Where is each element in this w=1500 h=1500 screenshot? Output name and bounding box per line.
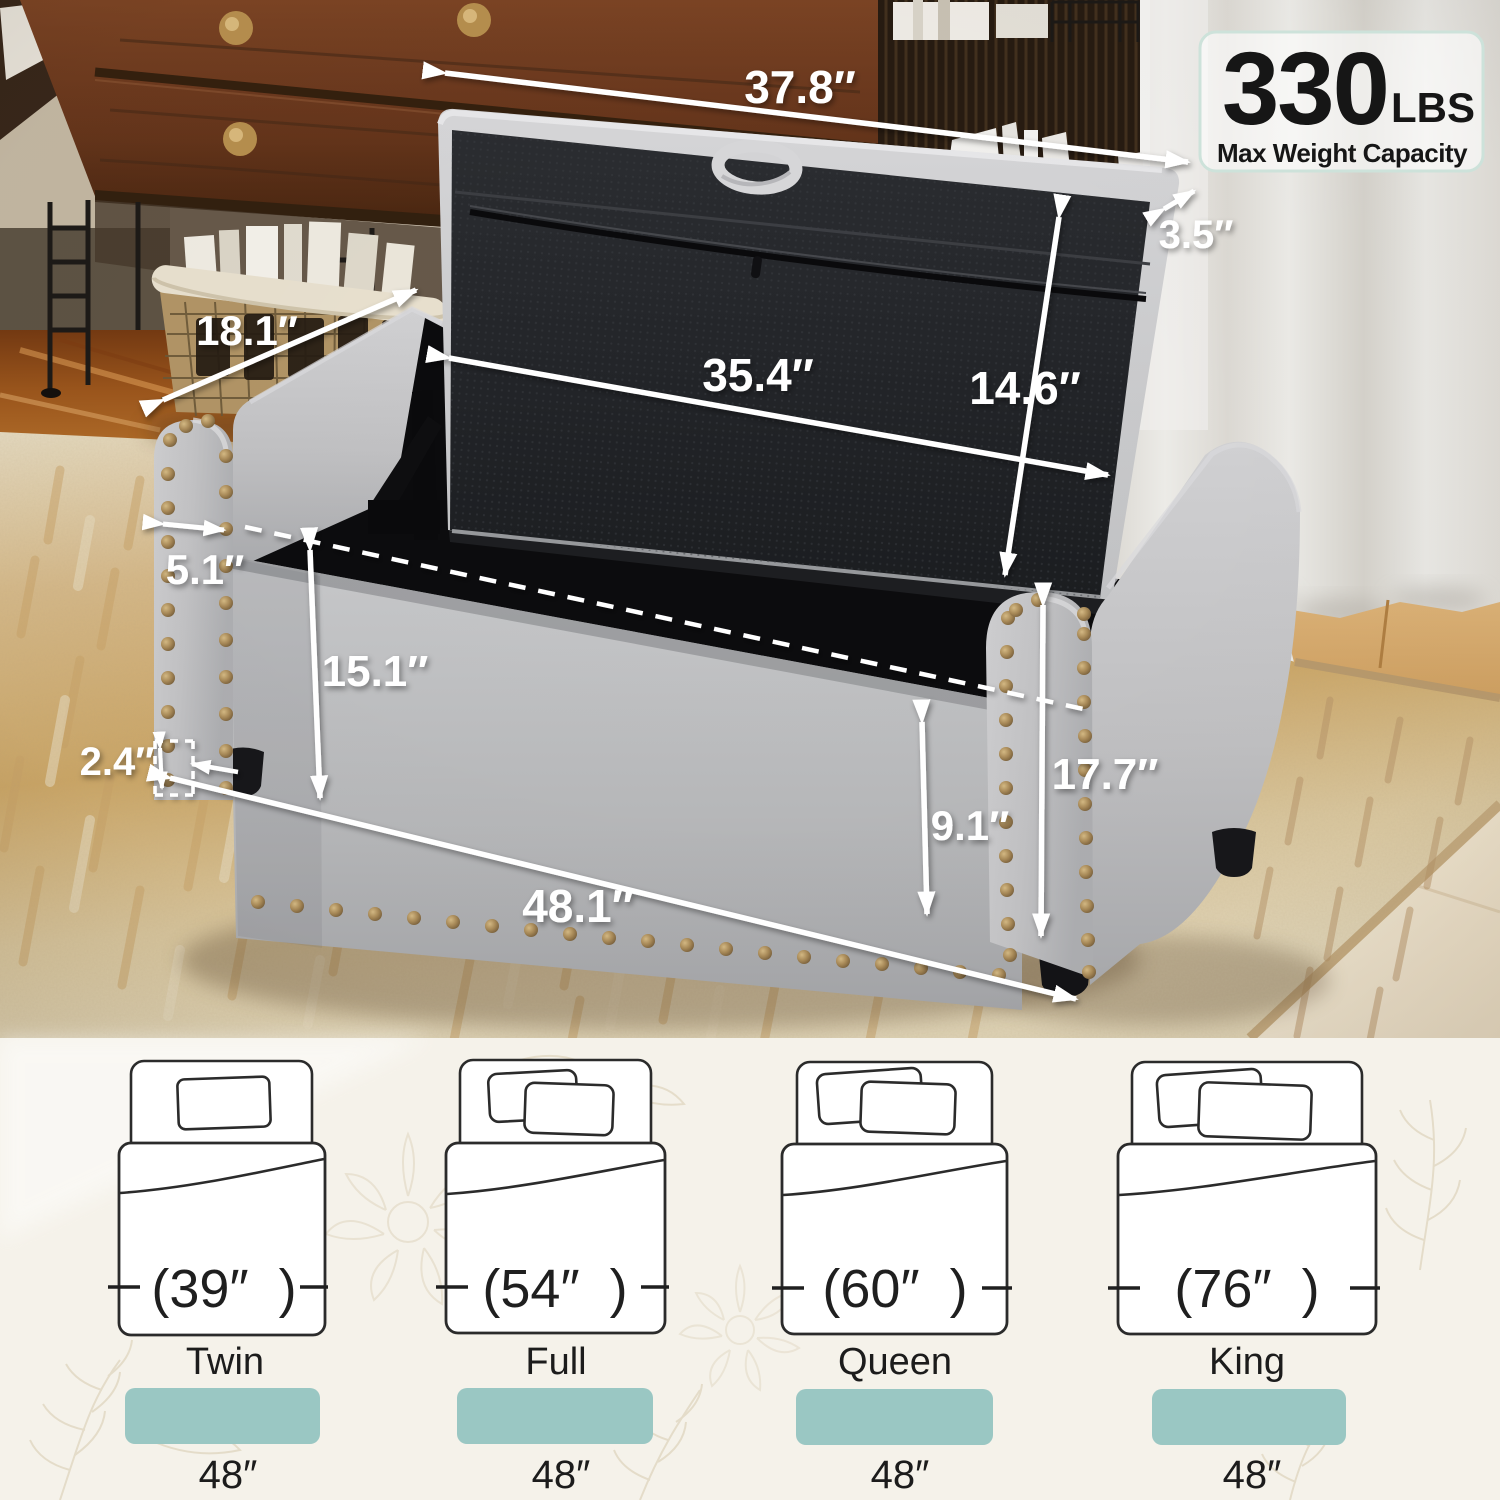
svg-text:48″: 48″ (199, 1453, 258, 1497)
svg-text:17.7″: 17.7″ (1052, 750, 1159, 799)
svg-text:18.1″: 18.1″ (196, 307, 298, 354)
svg-text:37.8″: 37.8″ (744, 61, 856, 113)
svg-text:Max Weight Capacity: Max Weight Capacity (1217, 138, 1468, 168)
svg-text:48.1″: 48.1″ (522, 880, 634, 932)
svg-text:King: King (1209, 1341, 1285, 1383)
svg-text:35.4″: 35.4″ (702, 349, 814, 401)
svg-text:48″: 48″ (871, 1453, 930, 1497)
svg-text:15.1″: 15.1″ (322, 647, 429, 696)
svg-text:(54″ ): (54″ ) (482, 1259, 627, 1319)
svg-text:(39″ ): (39″ ) (151, 1259, 296, 1319)
svg-text:(60″ ): (60″ ) (822, 1259, 967, 1319)
svg-text:3.5″: 3.5″ (1159, 213, 1234, 257)
svg-text:(76″ ): (76″ ) (1174, 1259, 1319, 1319)
svg-text:LBS: LBS (1391, 84, 1475, 131)
svg-text:14.6″: 14.6″ (969, 362, 1081, 414)
svg-text:Twin: Twin (186, 1341, 264, 1383)
svg-text:48″: 48″ (1223, 1453, 1282, 1497)
svg-text:330: 330 (1222, 31, 1388, 146)
svg-text:2.4″: 2.4″ (80, 740, 155, 784)
svg-text:5.1″: 5.1″ (166, 546, 245, 593)
svg-text:Full: Full (525, 1341, 586, 1383)
svg-text:9.1″: 9.1″ (931, 802, 1010, 849)
svg-text:Queen: Queen (838, 1341, 952, 1383)
svg-text:48″: 48″ (532, 1453, 591, 1497)
